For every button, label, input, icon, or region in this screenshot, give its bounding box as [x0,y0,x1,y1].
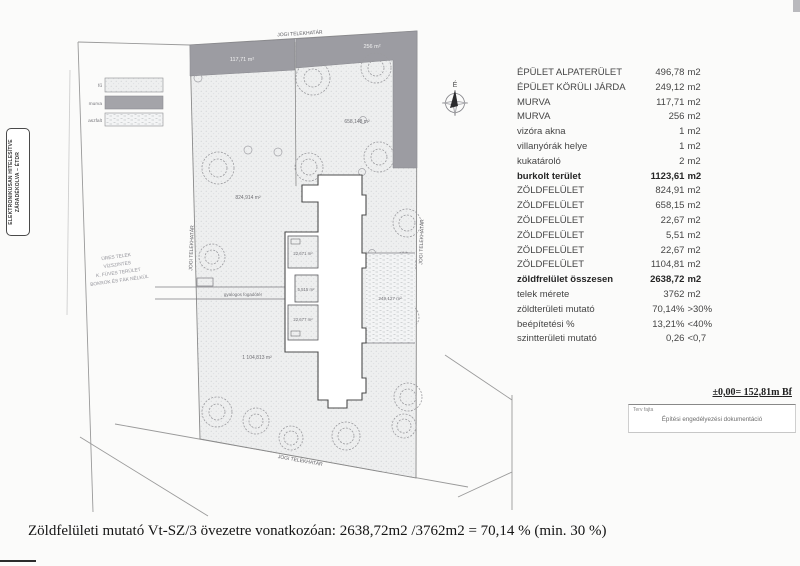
row-value: 1123,61 [633,171,684,182]
row-value: 22,67 [633,215,684,226]
row-unit: m2 [684,185,717,196]
row-label: beépítetési % [517,319,633,330]
boundary-label-left: JOGI TELEKHATÁR [187,225,196,271]
area-murva-right: 256 m² [363,44,380,50]
row-value: 22,67 [633,245,684,256]
row-label: ZÖLDFELÜLET [517,259,633,270]
title-block-field-value: Építési engedélyezési dokumentáció [629,416,795,423]
row-value: 496,78 [633,67,684,78]
row-unit: <0,7 [684,333,717,344]
row-label: ZÖLDFELÜLET [517,215,633,226]
row-label: villanyórák helye [517,141,633,152]
row-label: ÉPÜLET KÖRÜLI JÁRDA [517,82,633,93]
row-unit: <40% [684,319,717,330]
area-walk-right: 249,127 m² [378,296,402,301]
row-unit: m2 [684,82,717,93]
table-row: ZÖLDFELÜLET5,51m2 [517,230,717,245]
row-unit: m2 [684,141,717,152]
table-row: ÉPÜLET KÖRÜLI JÁRDA249,12m2 [517,82,717,97]
row-label: zöldterületi mutató [517,304,633,315]
scan-artifact-bottom-left [0,560,36,562]
row-label: burkolt terület [517,171,633,182]
row-unit: m2 [684,97,717,108]
row-label: kukatároló [517,156,633,167]
row-label: ZÖLDFELÜLET [517,185,633,196]
row-value: 1 [633,126,684,137]
table-row: zöldfrelület összesen2638,72m2 [517,274,717,289]
row-label: ZÖLDFELÜLET [517,245,633,256]
row-unit: m2 [684,259,717,270]
row-value: 249,12 [633,82,684,93]
table-row: MURVA256m2 [517,111,717,126]
title-block: Terv fajta Építési engedélyezési dokumen… [628,404,796,433]
compass-north-label: É [453,80,458,89]
row-unit: m2 [684,274,717,285]
area-green-ne: 658,148 m² [344,119,370,125]
area-murva-left: 117,71 m² [230,57,255,63]
table-row: MURVA117,71m2 [517,97,717,112]
stamp-line-2: ZÁRADÉKOLVA – ÉTDR [15,131,22,233]
table-row: vizóra akna1m2 [517,126,717,141]
table-row: ZÖLDFELÜLET658,15m2 [517,200,717,215]
row-unit: m2 [684,230,717,241]
row-label: ÉPÜLET ALPATERÜLET [517,67,633,78]
row-unit: m2 [684,215,717,226]
row-value: 2 [633,156,684,167]
row-value: 824,91 [633,185,684,196]
row-label: MURVA [517,111,633,122]
row-unit: m2 [684,289,717,300]
table-row: szintterületi mutató0,26<0,7 [517,333,717,348]
row-label: zöldfrelület összesen [517,274,633,285]
row-label: telek mérete [517,289,633,300]
area-green-s: 1 104,813 m² [242,355,272,361]
legend-asphalt-label: aszfalt [88,118,103,124]
etdr-stamp: ELEKTRONIKUSAN HITELESÍTVE ZÁRADÉKOLVA –… [6,128,30,236]
row-label: vizóra akna [517,126,633,137]
path-label: gyalogos fogadótér [224,292,263,297]
row-label: ZÖLDFELÜLET [517,200,633,211]
row-value: 13,21% [633,319,684,330]
row-unit: m2 [684,156,717,167]
area-green-w: 824,914 m² [235,195,261,201]
scan-artifact-top-right [793,0,800,12]
row-value: 1104,81 [633,259,684,270]
site-plan-drawing: É fű murva aszfalt ÜRES TELEK VÍZSZINTES… [60,10,520,520]
row-value: 0,26 [633,333,684,344]
table-row: ZÖLDFELÜLET1104,81m2 [517,259,717,274]
row-value: 70,14% [633,304,684,315]
row-unit: m2 [684,126,717,137]
area-summary-table: ÉPÜLET ALPATERÜLET496,78m2 ÉPÜLET KÖRÜLI… [517,67,717,348]
table-row: ZÖLDFELÜLET22,67m2 [517,245,717,260]
row-unit: m2 [684,67,717,78]
row-label: szintterületi mutató [517,333,633,344]
green-area-ratio-statement: Zöldfelületi mutató Vt-SZ/3 övezetre von… [28,523,607,540]
area-court-lower: 22,677 m² [293,317,313,322]
row-value: 1 [633,141,684,152]
row-unit: m2 [684,171,717,182]
table-row: ZÖLDFELÜLET22,67m2 [517,215,717,230]
row-value: 256 [633,111,684,122]
table-row: zöldterületi mutató70,14%>30% [517,304,717,319]
boundary-label-right: JOGI TELEKHATÁR [417,219,426,265]
table-row: villanyórák helye1m2 [517,141,717,156]
row-label: MURVA [517,97,633,108]
table-row: telek mérete3762m2 [517,289,717,304]
legend-grass-label: fű [98,83,102,89]
table-row: beépítetési %13,21%<40% [517,319,717,334]
legend-gravel-label: murva [89,101,103,107]
title-block-field-label: Terv fajta [633,407,795,413]
elevation-reference: ±0,00= 152,81m Bf [620,387,792,398]
row-unit: m2 [684,245,717,256]
plan-legend: fű murva aszfalt [88,78,163,126]
site-note: ÜRES TELEK VÍZSZINTES K. FÜVES TERÜLET B… [86,249,149,288]
row-value: 2638,72 [633,274,684,285]
note-line-1: ÜRES TELEK [101,251,132,262]
row-value: 117,71 [633,97,684,108]
area-court-upper: 22,671 m² [293,251,313,256]
row-value: 658,15 [633,200,684,211]
table-row: kukatároló2m2 [517,156,717,171]
table-row: ZÖLDFELÜLET824,91m2 [517,185,717,200]
table-row: ÉPÜLET ALPATERÜLET496,78m2 [517,67,717,82]
compass-icon: É [442,80,468,116]
row-unit: m2 [684,200,717,211]
row-value: 3762 [633,289,684,300]
table-row: burkolt terület1123,61m2 [517,171,717,186]
row-value: 5,51 [633,230,684,241]
row-label: ZÖLDFELÜLET [517,230,633,241]
area-court-mid: 5,515 m² [298,287,316,292]
row-unit: >30% [684,304,717,315]
row-unit: m2 [684,111,717,122]
